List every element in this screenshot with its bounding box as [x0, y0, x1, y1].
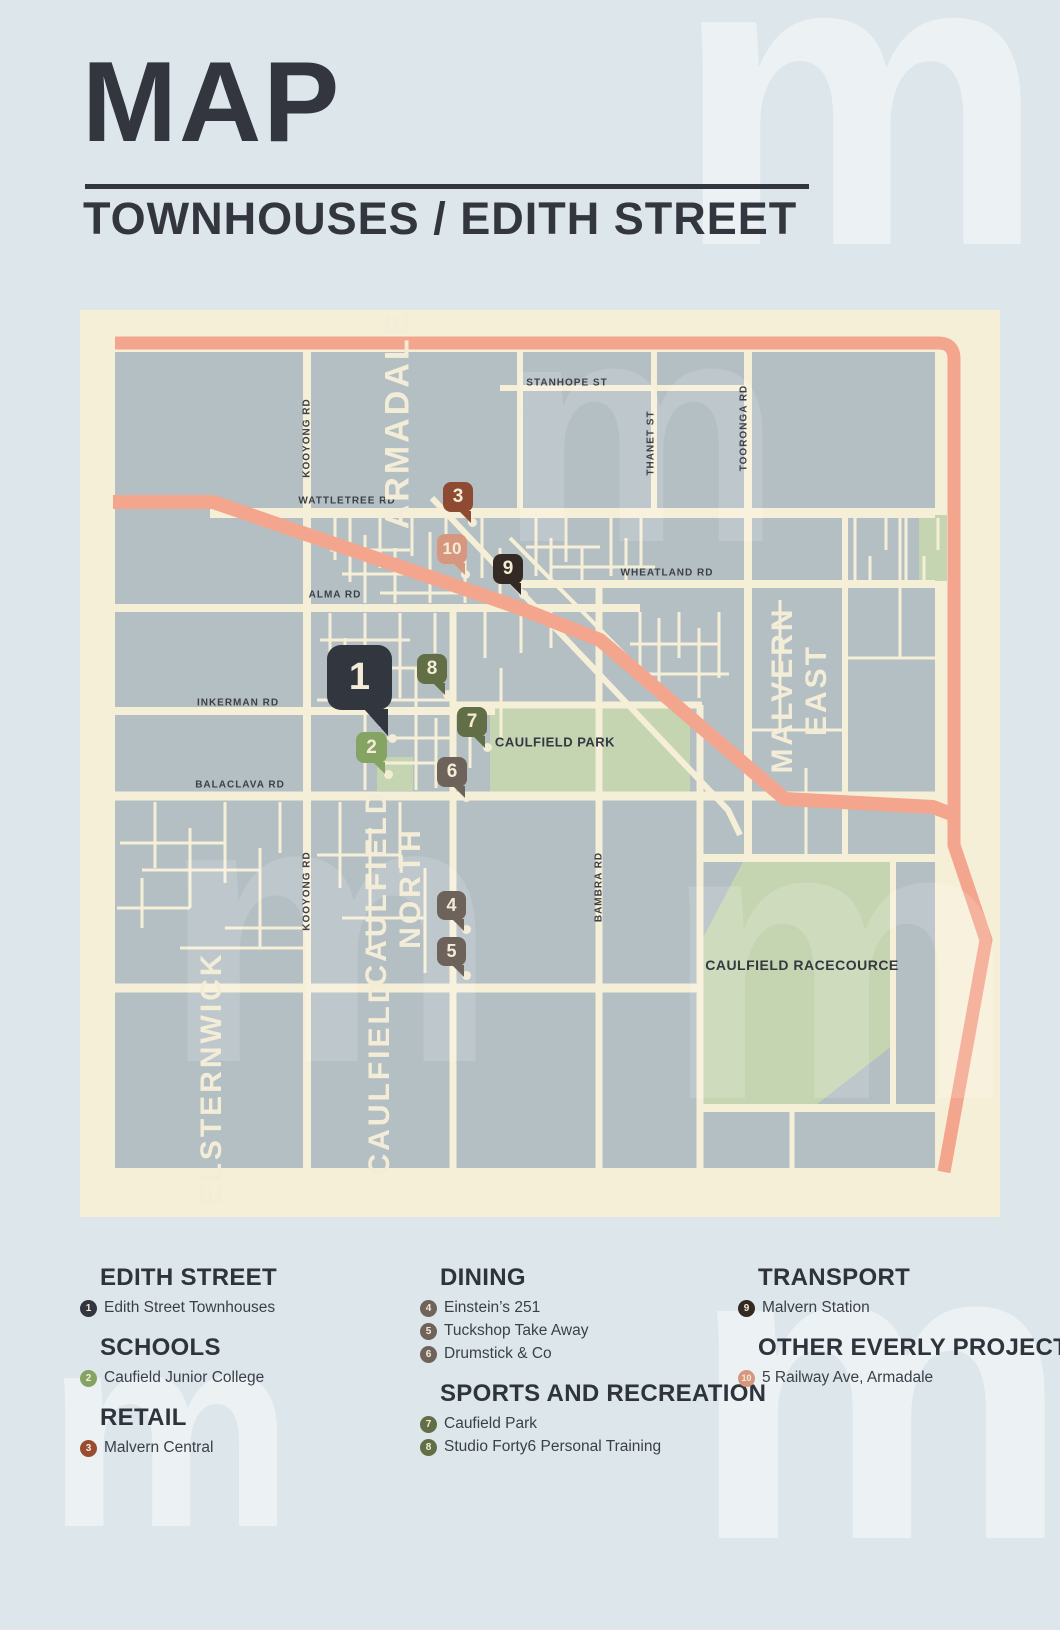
marker-number: 1 [349, 656, 370, 699]
legend-section: EDITH STREET1Edith Street Townhouses [80, 1264, 277, 1318]
page-title: MAP [82, 46, 341, 160]
map-markers: 12345678910 [80, 310, 1000, 1217]
legend-item: 3Malvern Central [80, 1438, 277, 1458]
legend-section: SPORTS AND RECREATION7Caufield Park8Stud… [420, 1380, 766, 1457]
marker-number: 2 [366, 737, 377, 759]
poster: mmm MAP TOWNHOUSES / EDITH STREET [0, 0, 1060, 1500]
marker-tail [473, 736, 485, 748]
marker-number: 8 [427, 658, 438, 680]
map-marker-3[interactable]: 3 [443, 482, 473, 512]
marker-tail [452, 919, 464, 931]
legend-column-2: DINING4Einstein’s 2515Tuckshop Take Away… [420, 1264, 766, 1473]
map-marker-9[interactable]: 9 [493, 554, 523, 584]
legend-item: 8Studio Forty6 Personal Training [420, 1437, 766, 1457]
legend-item: 7Caufield Park [420, 1414, 766, 1434]
map-marker-6[interactable]: 6 [437, 757, 467, 787]
marker-dot [388, 734, 397, 743]
marker-number: 3 [453, 486, 464, 508]
marker-number: 9 [503, 558, 514, 580]
marker-tail [453, 563, 465, 575]
legend-section: SCHOOLS2Caufield Junior College [80, 1334, 277, 1388]
legend-badge-6: 6 [420, 1346, 437, 1363]
legend-item-label: Studio Forty6 Personal Training [444, 1438, 661, 1456]
legend-heading: RETAIL [100, 1404, 277, 1432]
legend-badge-2: 2 [80, 1370, 97, 1387]
legend-item-label: Caufield Junior College [104, 1369, 264, 1387]
legend-column-3: TRANSPORT9Malvern StationOTHER EVERLY PR… [738, 1264, 1060, 1404]
legend-section: RETAIL3Malvern Central [80, 1404, 277, 1458]
legend-item: 9Malvern Station [738, 1298, 1060, 1318]
legend-badge-8: 8 [420, 1439, 437, 1456]
legend-item-label: Tuckshop Take Away [444, 1322, 588, 1340]
marker-number: 5 [446, 941, 456, 962]
marker-number: 4 [446, 895, 456, 916]
legend-badge-5: 5 [420, 1323, 437, 1340]
marker-tail [509, 583, 521, 595]
legend-heading: TRANSPORT [758, 1264, 1060, 1292]
marker-tail [373, 762, 385, 774]
title-rule [85, 184, 809, 189]
legend-item-label: Malvern Station [762, 1299, 870, 1317]
legend-badge-7: 7 [420, 1416, 437, 1433]
map-marker-2[interactable]: 2 [356, 732, 387, 763]
legend-heading: DINING [440, 1264, 766, 1292]
legend-item: 4Einstein’s 251 [420, 1298, 766, 1318]
map-marker-4[interactable]: 4 [437, 891, 466, 920]
legend-item-label: Einstein’s 251 [444, 1299, 540, 1317]
marker-tail [459, 511, 471, 523]
legend-item: 2Caufield Junior College [80, 1368, 277, 1388]
map-marker-10[interactable]: 10 [437, 534, 467, 564]
legend-heading: OTHER EVERLY PROJECTS [758, 1334, 1060, 1362]
marker-number: 6 [447, 761, 458, 783]
legend-heading: SCHOOLS [100, 1334, 277, 1362]
marker-tail [433, 683, 445, 695]
legend-heading: SPORTS AND RECREATION [440, 1380, 766, 1408]
map-marker-1[interactable]: 1 [327, 645, 392, 710]
legend-badge-3: 3 [80, 1440, 97, 1457]
legend-item: 6Drumstick & Co [420, 1344, 766, 1364]
page-subtitle: TOWNHOUSES / EDITH STREET [83, 196, 797, 241]
legend-item-label: Caufield Park [444, 1415, 537, 1433]
marker-tail [452, 965, 464, 977]
legend-section: OTHER EVERLY PROJECTS105 Railway Ave, Ar… [738, 1334, 1060, 1388]
map-marker-7[interactable]: 7 [457, 707, 487, 737]
legend-item-label: Malvern Central [104, 1439, 213, 1457]
legend-badge-1: 1 [80, 1300, 97, 1317]
legend-badge-10: 10 [738, 1370, 755, 1387]
legend-item: 105 Railway Ave, Armadale [738, 1368, 1060, 1388]
legend-item-label: Drumstick & Co [444, 1345, 552, 1363]
legend-column-1: EDITH STREET1Edith Street TownhousesSCHO… [80, 1264, 277, 1474]
legend-section: TRANSPORT9Malvern Station [738, 1264, 1060, 1318]
marker-tail [453, 786, 465, 798]
legend-item: 5Tuckshop Take Away [420, 1321, 766, 1341]
legend-badge-4: 4 [420, 1300, 437, 1317]
map-marker-5[interactable]: 5 [437, 937, 466, 966]
legend-item-label: Edith Street Townhouses [104, 1299, 275, 1317]
map-canvas: mmm STANHOPE STTHANET STTOORONGA RDWATTL… [80, 310, 1000, 1217]
legend-badge-9: 9 [738, 1300, 755, 1317]
map-marker-8[interactable]: 8 [417, 654, 447, 684]
legend-heading: EDITH STREET [100, 1264, 277, 1292]
legend-item: 1Edith Street Townhouses [80, 1298, 277, 1318]
legend-item-label: 5 Railway Ave, Armadale [762, 1369, 933, 1387]
marker-number: 7 [467, 711, 478, 733]
legend-section: DINING4Einstein’s 2515Tuckshop Take Away… [420, 1264, 766, 1364]
marker-number: 10 [443, 539, 462, 559]
